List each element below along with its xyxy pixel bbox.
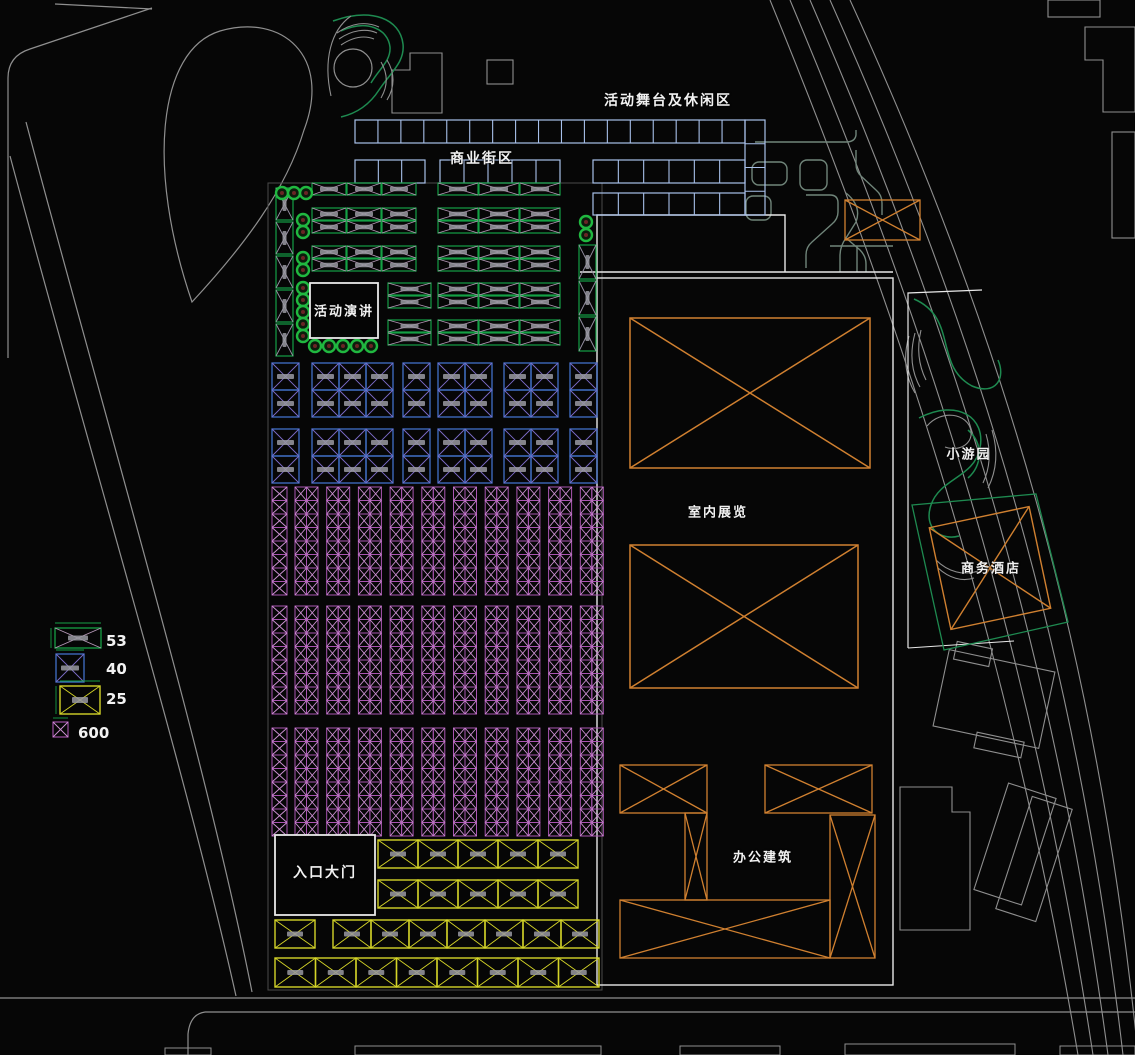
booth — [402, 501, 414, 515]
booth — [339, 429, 366, 456]
booth — [358, 782, 370, 796]
booth — [422, 647, 434, 661]
booth — [580, 769, 592, 783]
booth — [528, 796, 540, 810]
booth — [422, 606, 434, 620]
booth — [53, 722, 68, 737]
booth — [295, 582, 307, 596]
booth — [570, 390, 597, 417]
booth — [422, 769, 434, 783]
booth — [370, 660, 382, 674]
booth — [438, 259, 478, 271]
booth — [422, 633, 434, 647]
building-with-x — [620, 900, 830, 958]
booth — [338, 528, 350, 542]
booth — [560, 514, 572, 528]
booth — [338, 769, 350, 783]
label-stage-area: 活动舞台及休闲区 — [604, 90, 732, 110]
booth — [454, 782, 466, 796]
booth — [272, 687, 287, 701]
booth — [358, 809, 370, 823]
booth — [272, 568, 287, 582]
booth — [422, 796, 434, 810]
booth — [517, 809, 529, 823]
booth — [295, 606, 307, 620]
booth — [327, 674, 339, 688]
booth — [560, 701, 572, 715]
booth — [366, 363, 393, 390]
booth — [358, 606, 370, 620]
booth — [272, 541, 287, 555]
booth — [327, 809, 339, 823]
booth — [454, 823, 466, 837]
booth — [528, 487, 540, 501]
booth — [479, 320, 519, 332]
booth — [422, 674, 434, 688]
booth — [438, 363, 465, 390]
booth — [479, 183, 519, 195]
booth — [295, 782, 307, 796]
booth — [295, 528, 307, 542]
booth — [485, 660, 497, 674]
booth — [327, 568, 339, 582]
booth — [465, 769, 477, 783]
booth — [454, 582, 466, 596]
booth — [327, 647, 339, 661]
booth — [422, 541, 434, 555]
booth — [272, 809, 287, 823]
booth — [454, 620, 466, 634]
booth — [403, 429, 430, 456]
booth — [454, 796, 466, 810]
booth — [295, 501, 307, 515]
tree — [297, 306, 309, 318]
booth — [358, 728, 370, 742]
booth — [295, 755, 307, 769]
booth — [370, 755, 382, 769]
booth — [560, 487, 572, 501]
booth — [327, 728, 339, 742]
booth — [538, 880, 578, 908]
building-with-x — [630, 545, 858, 688]
booth — [422, 620, 434, 634]
booth — [370, 728, 382, 742]
booth — [327, 541, 339, 555]
booth — [485, 782, 497, 796]
booth — [560, 755, 572, 769]
booth — [454, 728, 466, 742]
booth — [272, 782, 287, 796]
booth — [370, 742, 382, 756]
booth — [307, 514, 319, 528]
booth — [549, 528, 561, 542]
booth — [447, 920, 485, 948]
booth — [549, 687, 561, 701]
booth — [538, 840, 578, 868]
booth — [327, 687, 339, 701]
booth — [454, 687, 466, 701]
booth — [390, 755, 402, 769]
booth — [560, 809, 572, 823]
booth — [338, 514, 350, 528]
booth — [528, 755, 540, 769]
booth — [390, 528, 402, 542]
booth — [388, 320, 431, 332]
booth — [580, 582, 592, 596]
booth — [580, 674, 592, 688]
booth — [560, 501, 572, 515]
booth — [433, 674, 445, 688]
booth — [433, 755, 445, 769]
booth — [485, 920, 523, 948]
booth — [358, 647, 370, 661]
booth — [338, 606, 350, 620]
booth — [579, 245, 596, 279]
booth — [356, 958, 397, 987]
booth — [272, 514, 287, 528]
booth — [531, 456, 558, 483]
booth — [307, 755, 319, 769]
booth — [433, 487, 445, 501]
booth — [402, 568, 414, 582]
booth — [295, 728, 307, 742]
booth — [312, 221, 346, 233]
booth — [390, 501, 402, 515]
tree — [580, 216, 592, 228]
booth — [390, 633, 402, 647]
booth — [549, 647, 561, 661]
booth — [307, 501, 319, 515]
booth — [465, 823, 477, 837]
booth — [454, 769, 466, 783]
booth — [479, 259, 519, 271]
booth — [272, 429, 299, 456]
booth — [358, 555, 370, 569]
booth — [549, 633, 561, 647]
booth — [465, 728, 477, 742]
booth — [295, 687, 307, 701]
booth — [479, 296, 519, 308]
booth — [497, 796, 509, 810]
booth — [465, 674, 477, 688]
booth — [307, 674, 319, 688]
booth — [295, 487, 307, 501]
booth — [438, 320, 478, 332]
booth — [465, 660, 477, 674]
booth — [517, 541, 529, 555]
booth — [272, 363, 299, 390]
booth — [390, 796, 402, 810]
booth — [579, 281, 596, 315]
booth — [560, 728, 572, 742]
booth — [517, 660, 529, 674]
booth — [517, 633, 529, 647]
booth — [390, 620, 402, 634]
booth — [327, 633, 339, 647]
booth — [327, 755, 339, 769]
booth — [370, 582, 382, 596]
booth — [549, 541, 561, 555]
building-with-x — [630, 318, 870, 468]
booth — [390, 487, 402, 501]
booth — [454, 514, 466, 528]
booth — [497, 701, 509, 715]
booth — [382, 259, 416, 271]
booth — [307, 620, 319, 634]
booth — [497, 528, 509, 542]
booth — [327, 701, 339, 715]
booth — [465, 687, 477, 701]
booth — [438, 246, 478, 258]
booth — [485, 633, 497, 647]
booth — [438, 429, 465, 456]
booth — [485, 687, 497, 701]
booth — [580, 541, 592, 555]
booth — [438, 390, 465, 417]
label-event-speech: 活动演讲 — [314, 301, 374, 320]
booth — [422, 755, 434, 769]
tree — [323, 340, 335, 352]
booth — [422, 528, 434, 542]
booth — [479, 246, 519, 258]
booth — [358, 687, 370, 701]
booth — [560, 674, 572, 688]
booth — [580, 728, 592, 742]
booth — [528, 728, 540, 742]
label-small-garden: 小游园 — [946, 444, 991, 463]
booth — [560, 568, 572, 582]
booth — [560, 541, 572, 555]
booth — [560, 796, 572, 810]
booth — [370, 647, 382, 661]
booth — [370, 606, 382, 620]
booth — [549, 555, 561, 569]
booth — [528, 501, 540, 515]
booth — [454, 487, 466, 501]
booth — [402, 769, 414, 783]
booth — [479, 208, 519, 220]
booth — [517, 674, 529, 688]
booth — [390, 514, 402, 528]
booth — [454, 568, 466, 582]
booth — [517, 701, 529, 715]
booth — [390, 606, 402, 620]
booth — [560, 555, 572, 569]
booth — [390, 568, 402, 582]
booth — [549, 769, 561, 783]
booth — [312, 456, 339, 483]
booth — [370, 823, 382, 837]
booth — [528, 514, 540, 528]
booth — [422, 687, 434, 701]
booth — [465, 809, 477, 823]
booth — [570, 429, 597, 456]
booth — [465, 390, 492, 417]
booth — [485, 755, 497, 769]
booth — [370, 528, 382, 542]
booth — [307, 728, 319, 742]
tree — [351, 340, 363, 352]
legend: 53 40 25 600 — [51, 623, 127, 742]
booth — [580, 755, 592, 769]
booth — [422, 742, 434, 756]
legend-count-green: 53 — [106, 632, 127, 650]
booth — [433, 701, 445, 715]
booth — [388, 333, 431, 345]
booth — [485, 742, 497, 756]
booth — [497, 823, 509, 837]
booth — [327, 660, 339, 674]
booth — [580, 687, 592, 701]
booth — [485, 582, 497, 596]
booth — [358, 755, 370, 769]
booth — [517, 514, 529, 528]
booth — [549, 728, 561, 742]
booth — [366, 456, 393, 483]
legend-count-purple: 600 — [78, 724, 109, 742]
booth — [402, 728, 414, 742]
booth — [570, 363, 597, 390]
booth — [312, 429, 339, 456]
booth — [272, 701, 287, 715]
booth — [338, 568, 350, 582]
booth — [517, 620, 529, 634]
tree — [365, 340, 377, 352]
booth — [485, 555, 497, 569]
booth — [433, 809, 445, 823]
booth — [370, 687, 382, 701]
booth — [465, 363, 492, 390]
booth — [580, 501, 592, 515]
booth — [358, 823, 370, 837]
booth — [485, 528, 497, 542]
booth — [338, 674, 350, 688]
commercial-street-layer — [355, 120, 765, 215]
booth — [307, 660, 319, 674]
booth — [347, 246, 381, 258]
booth — [454, 633, 466, 647]
booth — [438, 456, 465, 483]
booth — [366, 390, 393, 417]
booth — [338, 742, 350, 756]
booth — [382, 183, 416, 195]
booth — [390, 809, 402, 823]
booth — [370, 809, 382, 823]
booth — [454, 647, 466, 661]
booth — [433, 660, 445, 674]
booth — [465, 568, 477, 582]
booth — [454, 701, 466, 715]
booth — [485, 823, 497, 837]
booth — [272, 823, 287, 837]
booth — [295, 620, 307, 634]
booth — [497, 582, 509, 596]
booth — [276, 324, 293, 356]
booth — [528, 674, 540, 688]
booth — [327, 782, 339, 796]
booth — [338, 487, 350, 501]
booth — [382, 208, 416, 220]
label-office-building: 办公建筑 — [733, 847, 793, 866]
booth — [295, 809, 307, 823]
booth — [422, 660, 434, 674]
booth — [327, 555, 339, 569]
booth — [433, 501, 445, 515]
tree — [288, 187, 300, 199]
booth — [358, 796, 370, 810]
booth — [497, 633, 509, 647]
booth — [465, 501, 477, 515]
booth — [272, 674, 287, 688]
booth — [338, 501, 350, 515]
booth — [433, 541, 445, 555]
purple-booth-zone — [272, 487, 603, 836]
booth — [338, 541, 350, 555]
booth — [388, 283, 431, 295]
tree — [337, 340, 349, 352]
booth — [454, 660, 466, 674]
booth — [454, 501, 466, 515]
booth — [520, 183, 560, 195]
booth — [549, 620, 561, 634]
booth — [465, 782, 477, 796]
booth — [295, 541, 307, 555]
booth — [370, 501, 382, 515]
booth — [382, 221, 416, 233]
booth — [382, 246, 416, 258]
booth — [327, 582, 339, 596]
booth — [402, 742, 414, 756]
booth — [497, 660, 509, 674]
booth — [528, 769, 540, 783]
booth — [338, 701, 350, 715]
booth — [312, 246, 346, 258]
booth — [295, 796, 307, 810]
booth — [403, 363, 430, 390]
booth — [465, 487, 477, 501]
booth — [528, 701, 540, 715]
booth — [307, 823, 319, 837]
booth — [485, 728, 497, 742]
booth — [272, 647, 287, 661]
booth — [307, 742, 319, 756]
booth — [422, 728, 434, 742]
booth — [275, 958, 316, 987]
booth — [580, 555, 592, 569]
booth — [276, 256, 293, 288]
booth — [454, 528, 466, 542]
booth — [403, 456, 430, 483]
booth — [370, 555, 382, 569]
booth — [560, 660, 572, 674]
booth — [418, 880, 458, 908]
booth — [549, 514, 561, 528]
booth — [272, 487, 287, 501]
booth — [402, 514, 414, 528]
booth — [560, 620, 572, 634]
booth — [504, 456, 531, 483]
booth — [333, 920, 371, 948]
booth — [272, 728, 287, 742]
booth — [580, 782, 592, 796]
booth — [422, 782, 434, 796]
booth — [528, 660, 540, 674]
booth — [338, 620, 350, 634]
booth — [485, 514, 497, 528]
booth — [358, 620, 370, 634]
booth — [580, 633, 592, 647]
booth — [465, 633, 477, 647]
